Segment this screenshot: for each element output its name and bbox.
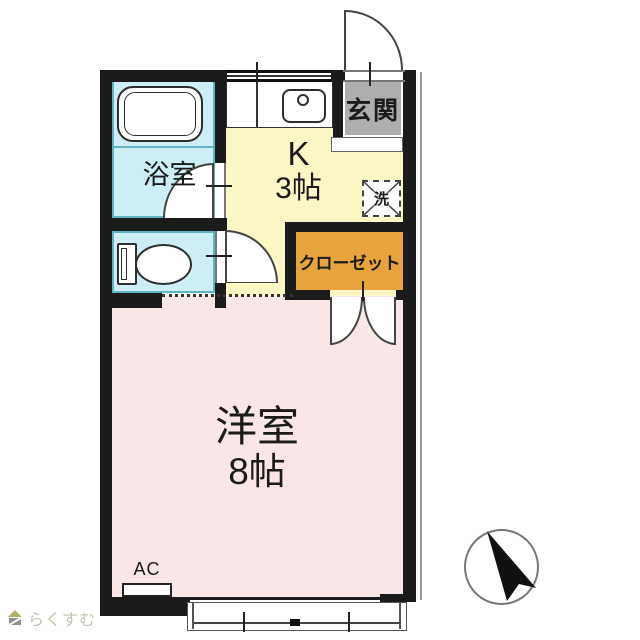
house-icon (7, 610, 23, 626)
wall-entrance-left (333, 70, 343, 137)
kitchen-counter-divider (256, 82, 258, 128)
rakusumu-logo: らくすむ (7, 607, 137, 629)
entrance-door-arc (345, 10, 403, 70)
sink-faucet (297, 94, 309, 106)
bathtub-inner (124, 92, 196, 136)
toilet-door-tick (206, 255, 232, 257)
sliding-window (187, 602, 407, 631)
ac-label: AC (120, 559, 174, 579)
logo-text: らくすむ (28, 606, 96, 630)
washing-machine-area: 洗 (362, 180, 401, 217)
wall-top-left (100, 70, 227, 82)
laundry-label: 洗 (364, 182, 399, 215)
kitchen-window (227, 70, 331, 82)
north-arrow-icon (464, 529, 539, 605)
wall-below-toilet (100, 293, 162, 308)
wall-closet-left (285, 222, 296, 300)
kitchen-window-rail (227, 75, 331, 77)
sliding-window-tick-1 (243, 612, 245, 632)
room-boundary-dotted (162, 294, 293, 297)
kitchen-label-line2: 3帖 (246, 172, 351, 206)
toilet-tank (117, 243, 137, 285)
bathroom-label: 浴室 (122, 154, 217, 190)
main-room-label-line1: 洋室 (177, 403, 337, 451)
plan-outline-right (420, 72, 422, 600)
entrance-door-leaf (344, 10, 346, 71)
wall-closet-top (285, 222, 403, 232)
sliding-window-tick-2 (348, 612, 350, 632)
entrance-label: 玄関 (343, 80, 403, 137)
bathtub-zone-line (112, 146, 215, 148)
floorplan-canvas: 洗 AC 浴室 K 3帖 玄関 クローゼット 洋室 8帖 (0, 0, 640, 640)
entrance-threshold-top (343, 70, 405, 72)
toilet-bowl (135, 244, 192, 285)
kitchen-label: K 3帖 (246, 136, 351, 206)
wall-bottom-right-stub (380, 594, 416, 602)
sliding-window-lock (290, 619, 300, 626)
wall-right (403, 70, 416, 602)
toilet-tank-inner (121, 248, 127, 280)
kitchen-label-line1: K (246, 136, 351, 172)
toilet-door-jamb (215, 231, 217, 283)
main-room-label-line2: 8帖 (177, 451, 337, 493)
bathroom-door-jamb (224, 163, 226, 218)
compass (464, 529, 539, 605)
main-room-label: 洋室 8帖 (177, 403, 337, 493)
wall-bath-toilet (100, 218, 227, 231)
closet-label: クローゼット (296, 232, 403, 290)
ac-unit (122, 583, 172, 597)
wall-bath-kitchen (215, 80, 226, 163)
sliding-window-left-rail (192, 603, 194, 629)
wall-left (100, 70, 112, 616)
sliding-window-right-rail (399, 603, 401, 629)
wall-closet-bottom-right (396, 290, 403, 300)
